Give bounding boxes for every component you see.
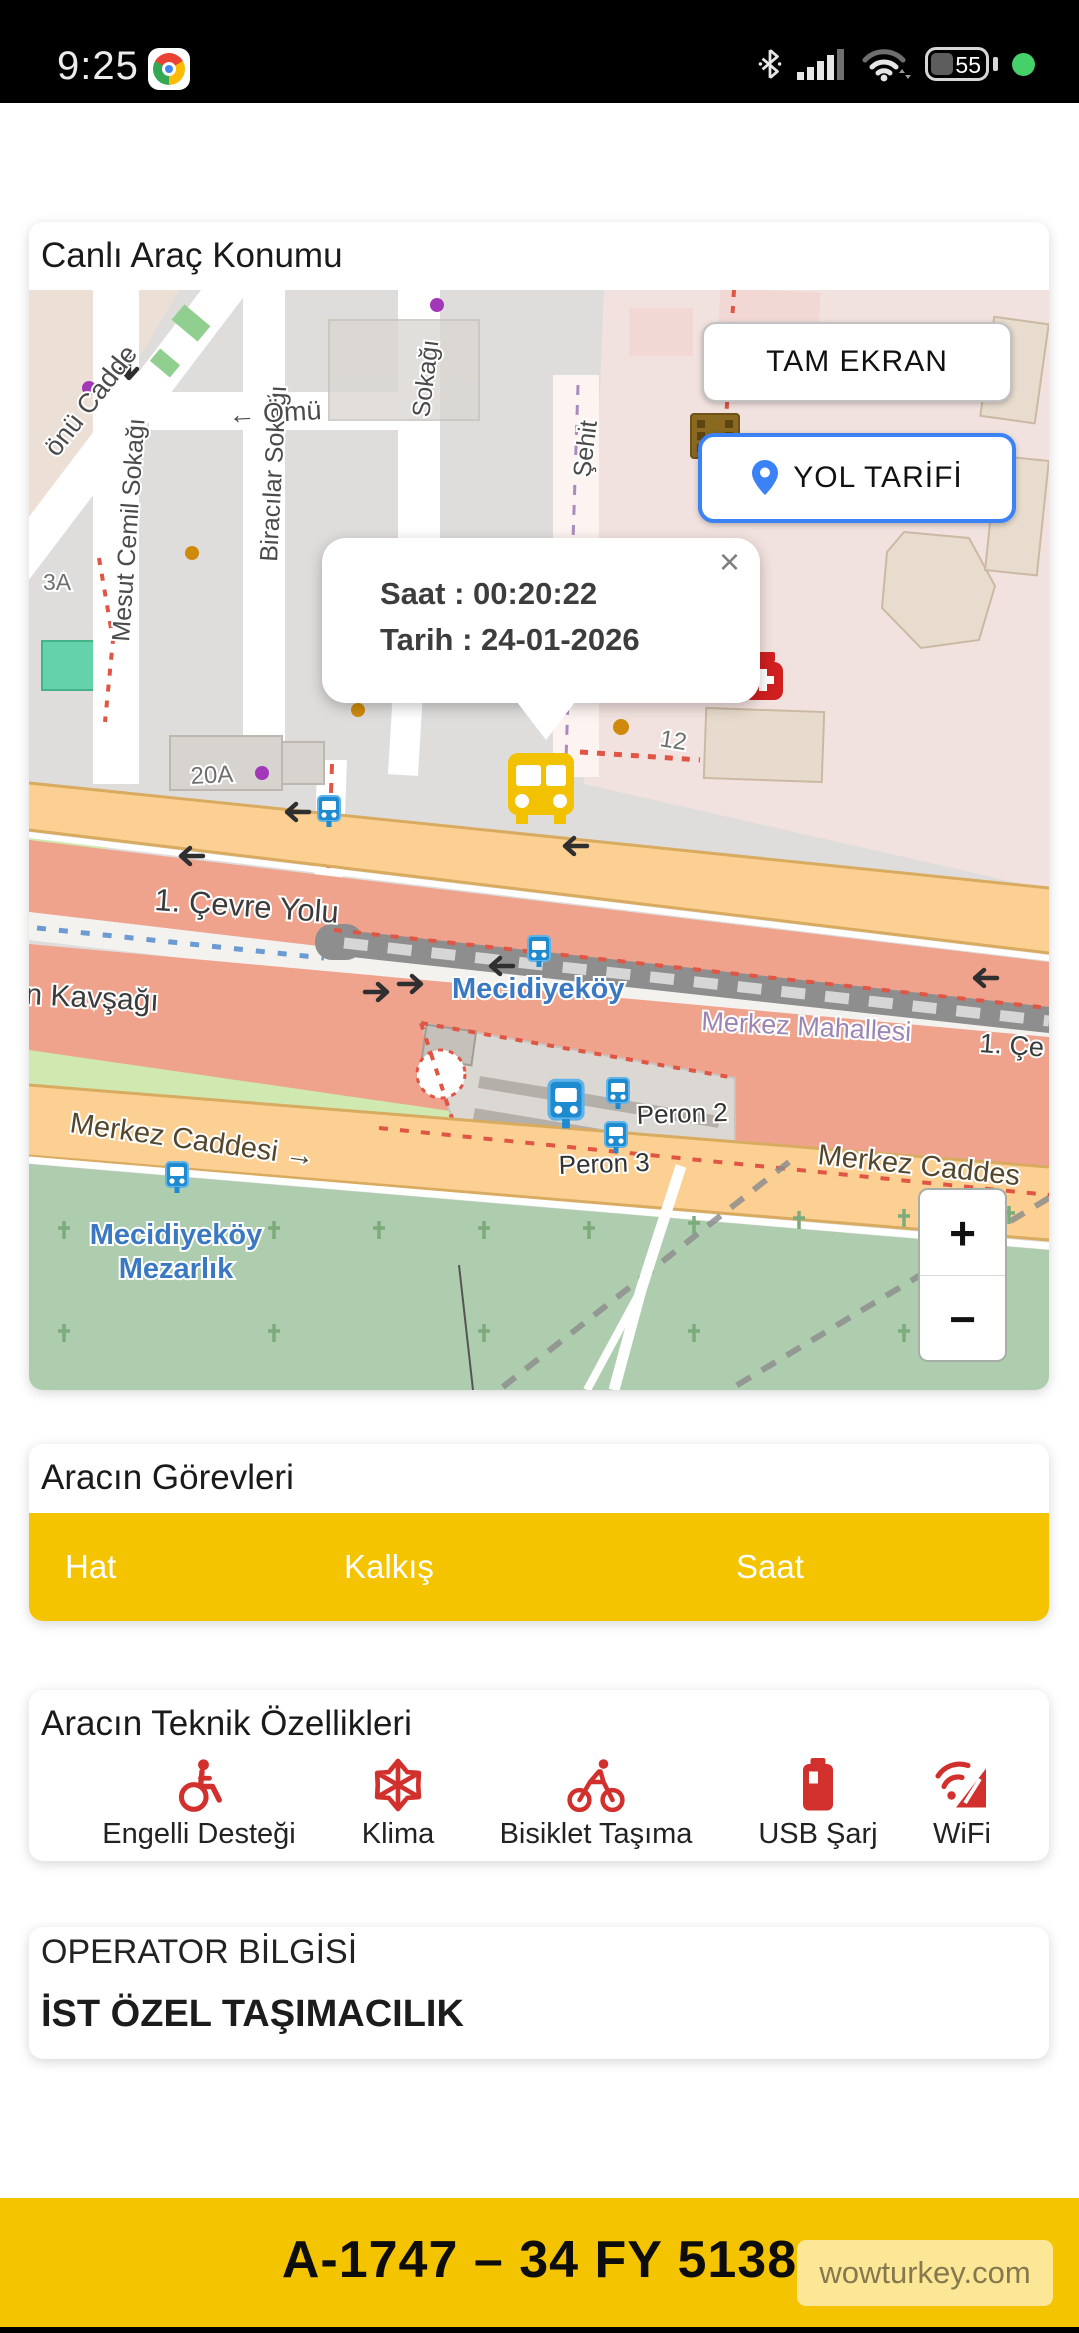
vehicle-tasks-card: Aracın Görevleri Hat Kalkış Saat	[29, 1444, 1049, 1621]
directions-button[interactable]: YOL TARİFİ	[698, 433, 1016, 523]
map[interactable]: önü Cadde Mesut Cemil Sokağı Biracılar S…	[29, 290, 1049, 1390]
feature-wifi: WiFi	[832, 1754, 1079, 1851]
fullscreen-button-label: TAM EKRAN	[766, 345, 948, 379]
live-location-card: Canlı Araç Konumu	[29, 222, 1049, 1390]
column-header-kalkis: Kalkış	[344, 1513, 434, 1621]
svg-text:← Ömü: ← Ömü	[228, 395, 322, 430]
tasks-title: Aracın Görevleri	[29, 1444, 1049, 1498]
feature-bicycle: Bisiklet Taşıma	[466, 1754, 726, 1851]
battery-percent: 55	[955, 52, 981, 79]
fullscreen-button[interactable]: TAM EKRAN	[702, 322, 1012, 402]
bluetooth-icon	[757, 48, 783, 80]
wifi-signal-icon	[832, 1754, 1079, 1812]
signal-strength-icon	[797, 48, 847, 80]
zoom-in-button[interactable]: +	[920, 1190, 1005, 1275]
status-bar: 9:25 55	[0, 0, 1079, 103]
battery-indicator: 55	[925, 47, 989, 81]
vehicle-info-popup: Saat : 00:20:22 Tarih : 24-01-2026 ×	[322, 538, 760, 703]
bottom-system-bar	[0, 2327, 1079, 2333]
vehicle-plate-footer: A-1747 – 34 FY 5138 wowturkey.com	[0, 2198, 1079, 2327]
map-zoom-control: + −	[918, 1188, 1007, 1362]
technical-features-card: Aracın Teknik Özellikleri Engelli Desteğ…	[29, 1690, 1049, 1861]
svg-text:n Kavşağı: n Kavşağı	[29, 978, 160, 1018]
popup-date: Tarih : 24-01-2026	[380, 622, 640, 658]
svg-text:Peron 3: Peron 3	[558, 1147, 650, 1180]
watermark: wowturkey.com	[797, 2240, 1053, 2306]
operator-title: OPERATOR BİLGİSİ	[41, 1933, 357, 1972]
tasks-table-header: Hat Kalkış Saat	[29, 1513, 1049, 1621]
zoom-out-button[interactable]: −	[920, 1276, 1005, 1361]
svg-text:Mecidiyeköy: Mecidiyeköy	[90, 1219, 262, 1251]
clock: 9:25	[57, 44, 139, 89]
operator-name: İST ÖZEL TAŞIMACILIK	[41, 1993, 464, 2036]
close-icon[interactable]: ×	[719, 544, 740, 580]
svg-text:20A: 20A	[190, 761, 234, 790]
feature-label: Bisiklet Taşıma	[466, 1818, 726, 1851]
svg-text:3A: 3A	[43, 569, 72, 595]
popup-time: Saat : 00:20:22	[380, 576, 597, 612]
directions-button-label: YOL TARİFİ	[793, 461, 962, 495]
column-header-saat: Saat	[736, 1513, 804, 1621]
svg-text:Mezarlık: Mezarlık	[119, 1253, 234, 1285]
chrome-notification-icon	[148, 48, 190, 90]
svg-text:Mecidiyeköy: Mecidiyeköy	[452, 973, 624, 1005]
bicycle-icon	[466, 1754, 726, 1812]
svg-text:Peron 2: Peron 2	[636, 1097, 728, 1130]
status-green-dot	[1012, 53, 1035, 76]
wifi-icon	[861, 46, 911, 82]
svg-text:1. Çe: 1. Çe	[979, 1028, 1045, 1062]
svg-text:12: 12	[658, 725, 689, 756]
live-location-title: Canlı Araç Konumu	[29, 222, 1049, 276]
feature-label: WiFi	[832, 1818, 1079, 1851]
features-title: Aracın Teknik Özellikleri	[29, 1690, 1049, 1744]
location-pin-icon	[751, 460, 779, 496]
column-header-hat: Hat	[65, 1513, 116, 1621]
operator-info-card: OPERATOR BİLGİSİ İST ÖZEL TAŞIMACILIK	[29, 1927, 1049, 2059]
